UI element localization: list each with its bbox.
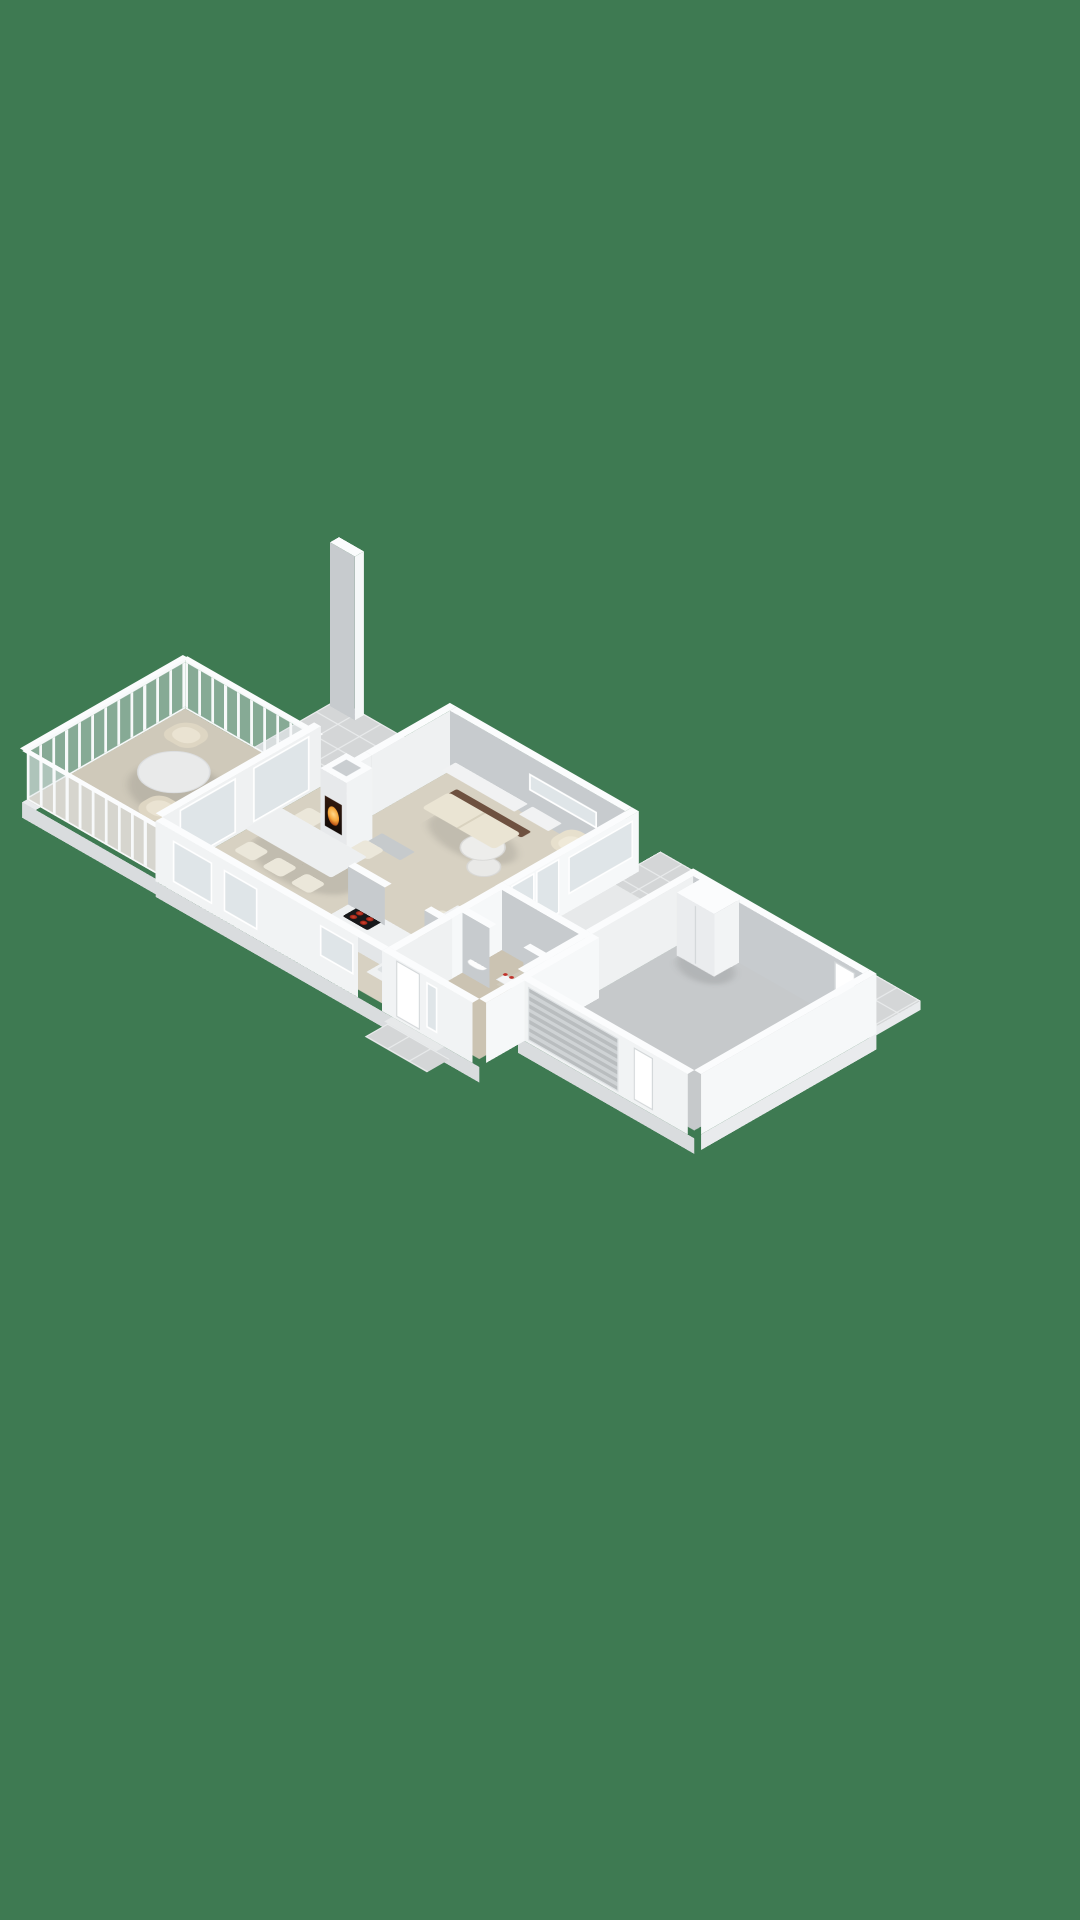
render-canvas (0, 0, 1080, 1920)
front-sidelight-window (426, 981, 437, 1033)
fire-flame (328, 804, 339, 829)
wardrobe-door-seam (695, 906, 696, 964)
firebox (325, 795, 342, 835)
window-dining-b (224, 869, 258, 930)
chimney-east-face (355, 551, 364, 720)
chimney-south-face (330, 542, 355, 720)
flue-vent (332, 760, 361, 777)
window-dining-a (173, 840, 213, 905)
chair-cushion (167, 724, 205, 746)
garage-back-door (634, 1047, 653, 1110)
